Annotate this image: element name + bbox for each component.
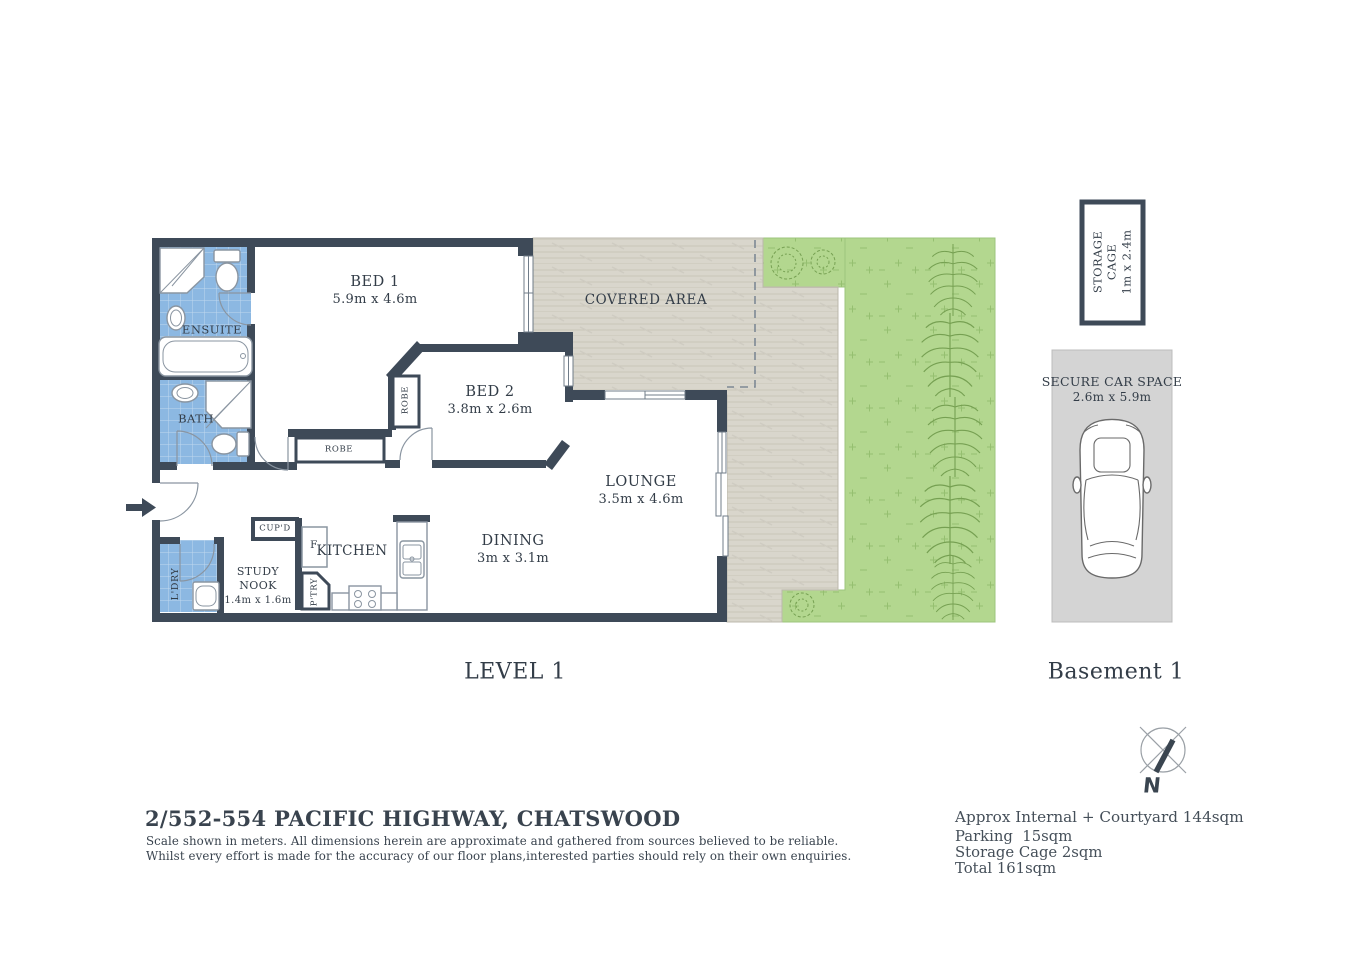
basement-label: Basement 1 xyxy=(1048,659,1184,688)
room-label-bath: BATH xyxy=(178,412,214,427)
disclaimer: Scale shown in meters. All dimensions he… xyxy=(146,834,851,863)
storage-cage-label: STORAGE CAGE 1m x 2.4m xyxy=(1090,212,1133,312)
room-label-kitchen: KITCHEN xyxy=(317,543,388,561)
room-label-laundry: L'DRY xyxy=(170,568,182,601)
toilet-icon xyxy=(237,432,249,456)
room-label-dining: DINING 3m x 3.1m xyxy=(477,532,549,568)
area-storage: Storage Cage 2sqm xyxy=(955,844,1102,861)
level-label: LEVEL 1 xyxy=(464,659,566,688)
room-label-lounge: LOUNGE 3.5m x 4.6m xyxy=(599,473,684,509)
room-label-fridge: F xyxy=(310,539,318,553)
room-label-cupboard: CUP'D xyxy=(259,523,291,534)
page-title: 2/552-554 PACIFIC HIGHWAY, CHATSWOOD xyxy=(145,806,680,831)
basin-icon xyxy=(172,384,198,402)
room-label-bed1: BED 1 5.9m x 4.6m xyxy=(333,273,418,309)
room-label-study-nook: STUDY NOOK 1.4m x 1.6m xyxy=(218,565,298,607)
cooktop-icon xyxy=(349,586,381,610)
room-label-pantry: P'TRY xyxy=(309,578,320,606)
area-internal-courtyard: Approx Internal + Courtyard 144sqm xyxy=(955,808,1244,826)
compass-icon xyxy=(1140,727,1186,773)
area-parking: Parking 15sqm xyxy=(955,828,1072,845)
room-label-robe-hall: ROBE xyxy=(325,444,353,455)
toilet-icon xyxy=(214,250,240,262)
car-icon xyxy=(1073,420,1151,579)
room-label-ensuite: ENSUITE xyxy=(182,323,242,338)
area-total: Total 161sqm xyxy=(955,860,1056,877)
disclaimer-line2: Whilst every effort is made for the accu… xyxy=(146,849,851,864)
disclaimer-line1: Scale shown in meters. All dimensions he… xyxy=(146,834,851,849)
entry-arrow-icon xyxy=(126,498,156,517)
covered-area-label: COVERED AREA xyxy=(585,292,708,310)
floorplan-page: BED 1 5.9m x 4.6m BED 2 3.8m x 2.6m LOUN… xyxy=(0,0,1358,960)
room-label-bed2: BED 2 3.8m x 2.6m xyxy=(448,383,533,419)
room-label-robe-bed2: ROBE xyxy=(400,386,411,414)
bathtub-icon xyxy=(159,337,252,376)
car-space-label: SECURE CAR SPACE 2.6m x 5.9m xyxy=(1042,374,1183,406)
north-label: N xyxy=(1142,772,1163,799)
